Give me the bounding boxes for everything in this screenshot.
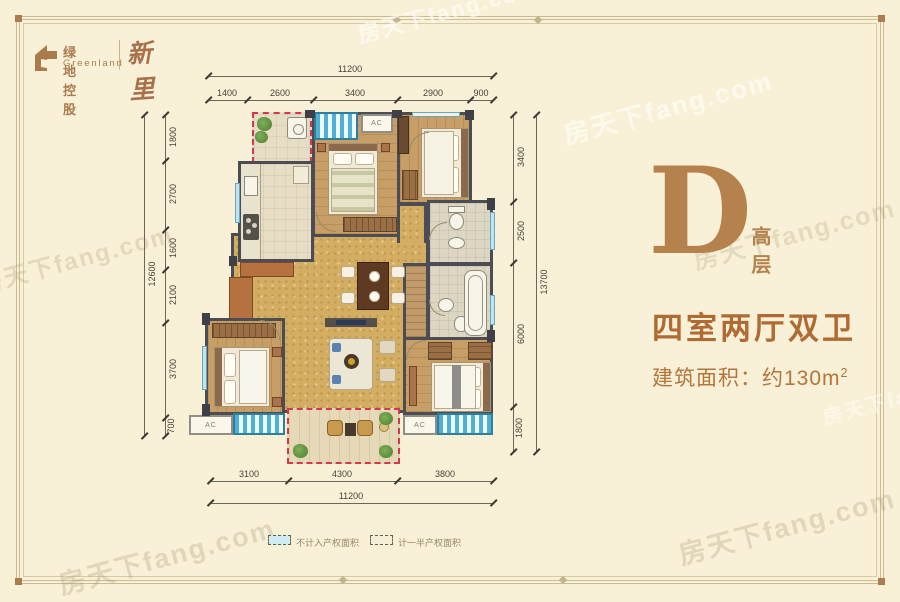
window [202, 346, 207, 390]
bathtub-icon [464, 270, 487, 336]
coffee-table [344, 354, 359, 369]
dim-label: 2700 [168, 174, 178, 214]
washer-icon [287, 117, 307, 139]
dim-line [210, 503, 493, 504]
nightstand [317, 143, 326, 152]
plant-icon [257, 117, 272, 131]
entry-cabinet [398, 116, 409, 154]
dresser [428, 342, 452, 360]
ac-label: AC [414, 422, 426, 429]
area-text: 建筑面积：约130m2 [652, 362, 849, 392]
dim-line [513, 115, 514, 452]
nightstand [272, 347, 282, 357]
tea-table [345, 423, 356, 436]
area-sup: 2 [841, 366, 849, 380]
dim-label: 3800 [425, 469, 465, 479]
bar-counter [240, 262, 294, 277]
dim-line [165, 115, 166, 436]
dim-label: 11200 [321, 491, 381, 501]
unit-letter: D [648, 152, 752, 272]
frame-corner-icon [878, 578, 885, 585]
dim-line [144, 115, 145, 436]
dim-label: 900 [463, 88, 499, 98]
window [490, 295, 495, 325]
dining-table [357, 262, 389, 310]
ac-label: AC [205, 422, 217, 429]
nightstand [272, 397, 282, 407]
legend-swatch-half [370, 535, 393, 545]
dresser [468, 342, 492, 360]
ac-platform: AC [361, 114, 393, 133]
dim-label: 3100 [229, 469, 269, 479]
dim-label: 1400 [207, 88, 247, 98]
armchair [379, 368, 396, 382]
watermark: 房天下fang.com [674, 477, 900, 572]
chair [341, 266, 355, 278]
tv-icon [336, 320, 366, 325]
hallway-floor [397, 203, 427, 243]
dim-label: 3400 [516, 137, 526, 177]
bay-window [233, 413, 285, 435]
window [412, 112, 460, 117]
dim-line [208, 100, 493, 101]
dim-label: 12600 [147, 254, 157, 294]
dim-label: 13700 [539, 262, 549, 302]
balcony-chair [357, 420, 373, 436]
equipment-balcony [252, 112, 312, 163]
dim-label: 3400 [335, 88, 375, 98]
dim-label: 3700 [168, 349, 178, 389]
balcony-chair [327, 420, 343, 436]
window [235, 183, 240, 223]
logo-company-en: Greenland [63, 58, 124, 69]
dim-label: 11200 [320, 64, 380, 74]
dim-label: 4300 [322, 469, 362, 479]
wardrobe [343, 217, 397, 232]
watermark: 房天下fang.com [354, 0, 542, 49]
bed-icon [431, 362, 491, 412]
dresser [402, 170, 418, 200]
logo-divider [119, 40, 120, 70]
dim-label: 2900 [413, 88, 453, 98]
plant-icon [255, 131, 268, 143]
balcony [287, 408, 400, 464]
dim-line [536, 115, 537, 452]
bed-icon [328, 143, 378, 215]
plant-icon [379, 412, 393, 425]
toilet-icon [449, 213, 464, 230]
greenland-house-icon [33, 41, 59, 73]
floorplan-poster: { "logo": { "company_cn": "绿地控股", "compa… [0, 0, 900, 600]
chair [341, 292, 355, 304]
dim-label: 700 [166, 408, 176, 444]
dim-label: 1800 [168, 117, 178, 157]
nightstand [381, 143, 390, 152]
bed-icon [214, 347, 270, 407]
dim-line [208, 76, 493, 77]
dim-label: 6000 [516, 314, 526, 354]
legend-swatch-noncounted [268, 535, 291, 545]
chair [391, 266, 405, 278]
sink-icon [448, 237, 465, 249]
frame-corner-icon [878, 15, 885, 22]
watermark: 房天下fang.com [559, 61, 777, 153]
armchair [379, 340, 396, 354]
logo-brand-script: 新里 [126, 33, 156, 107]
dim-label: 1800 [514, 410, 524, 446]
fridge-icon [293, 166, 309, 184]
dim-label: 1600 [168, 228, 178, 268]
frame-ornament-icon [393, 16, 401, 24]
legend-label: 计一半产权面积 [398, 536, 461, 549]
kitchen-sink-icon [244, 176, 258, 196]
bench [409, 366, 417, 406]
unit-tag: 高层 [745, 226, 774, 282]
area-value: 建筑面积：约130m [652, 367, 841, 390]
bar-counter [229, 277, 253, 322]
watermark: 房天下fang.com [54, 507, 280, 602]
dim-label: 2100 [168, 275, 178, 315]
frame-ornament-icon [559, 576, 567, 584]
toilet-icon [448, 206, 465, 213]
ac-label: AC [371, 120, 383, 127]
legend-label: 不计入产权面积 [296, 536, 359, 549]
bay-window [437, 413, 493, 435]
closet [403, 263, 429, 340]
chair [391, 292, 405, 304]
dim-label: 2500 [516, 211, 526, 251]
bay-window [314, 112, 358, 140]
frame-ornament-icon [534, 16, 542, 24]
logo-company-cn: 绿地控股 [63, 42, 78, 118]
kitchen [238, 161, 314, 262]
plant-icon [379, 445, 393, 458]
plant-icon [293, 444, 308, 458]
frame-ornament-icon [339, 576, 347, 584]
ac-platform: AC [189, 415, 233, 435]
dim-line [210, 481, 493, 482]
frame-corner-icon [15, 578, 22, 585]
tv-console [325, 318, 377, 327]
dim-label: 2600 [260, 88, 300, 98]
layout-title: 四室两厅双卫 [652, 303, 856, 348]
ac-platform: AC [403, 415, 437, 435]
stove-icon [243, 214, 259, 240]
window [490, 212, 495, 250]
frame-corner-icon [15, 15, 22, 22]
